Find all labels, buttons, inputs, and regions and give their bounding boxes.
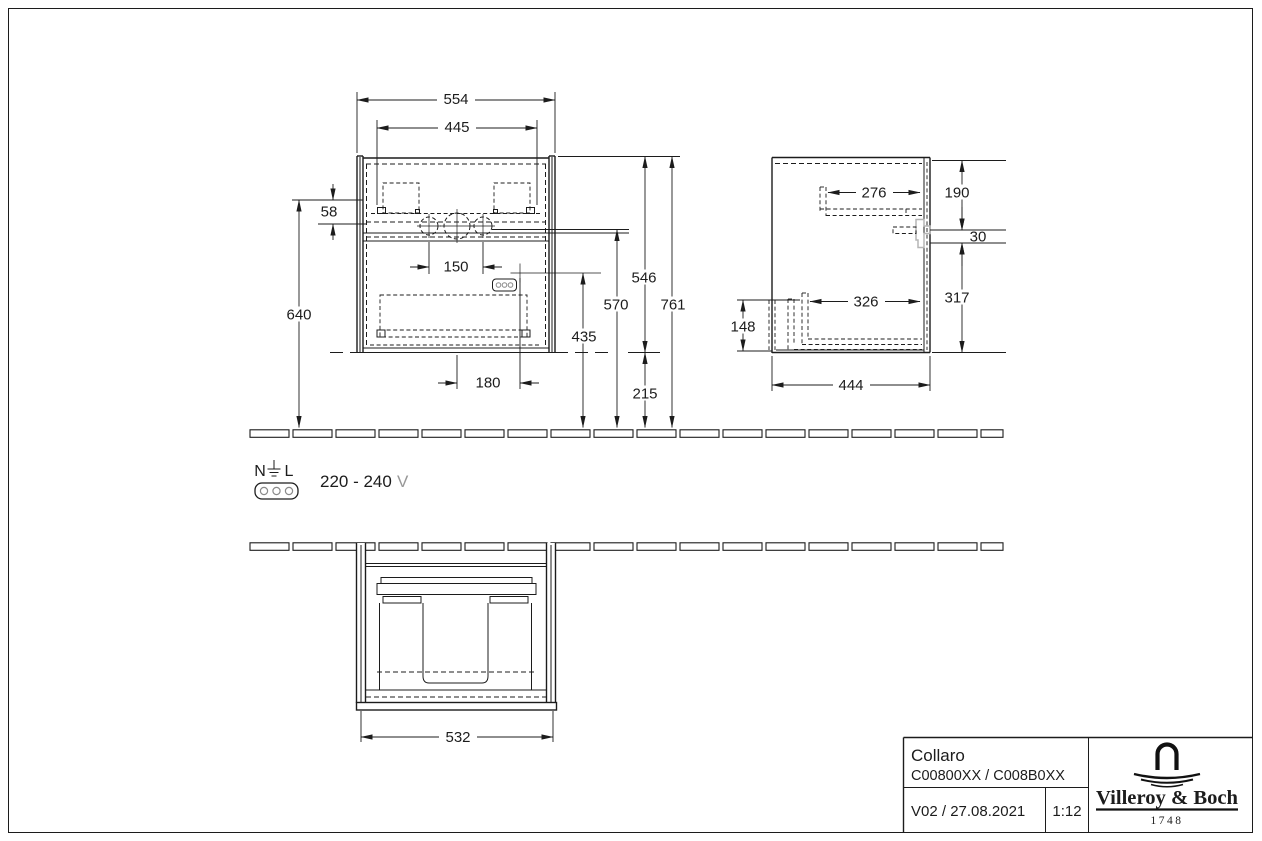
dim-front-height: 148 <box>730 319 755 336</box>
dim-plan-front-width: 532 <box>445 729 470 746</box>
power-socket-icon <box>255 483 298 499</box>
dim-upper-rail-depth: 276 <box>861 185 886 202</box>
front-view-upper-brackets <box>371 183 541 214</box>
side-view-dimensions: 276 190 30 317 326 148 444 <box>725 161 1006 395</box>
dim-rail-height: 570 <box>603 297 628 314</box>
line-label: L <box>285 463 294 480</box>
dim-gap-below: 215 <box>632 386 657 403</box>
dim-lower-rail-depth: 326 <box>853 294 878 311</box>
dim-depth: 444 <box>838 377 863 394</box>
page-border <box>9 9 1253 833</box>
tap-hole-markers <box>417 209 495 243</box>
dim-siphon-offset: 180 <box>475 375 500 392</box>
article-numbers: C00800XX / C008B0XX <box>911 768 1065 784</box>
dim-siphon-height: 435 <box>571 329 596 346</box>
version-date: V02 / 27.08.2021 <box>911 803 1025 820</box>
voltage-range: 220 - 240 <box>320 472 392 491</box>
product-name: Collaro <box>911 746 965 765</box>
dim-front-top-offset: 58 <box>321 204 338 221</box>
front-view-lower-drawer <box>370 295 540 345</box>
neutral-label: N <box>254 463 266 480</box>
technical-drawing-page: 554 445 58 640 150 180 435 <box>0 0 1262 841</box>
dim-front-width-inner: 445 <box>444 119 469 136</box>
voltage-unit: V <box>397 472 409 491</box>
power-socket-icon <box>493 279 517 291</box>
dim-lower-height: 317 <box>944 290 969 307</box>
dim-upper-height: 190 <box>944 185 969 202</box>
dim-bracket-height: 30 <box>970 229 987 246</box>
dim-front-width-outer: 554 <box>443 91 468 108</box>
plan-view-drawer <box>377 578 536 691</box>
wall-hatch-upper <box>250 430 1003 438</box>
technical-drawing-canvas: 554 445 58 640 150 180 435 <box>0 0 1262 841</box>
title-block: Collaro C00800XX / C008B0XX V02 / 27.08.… <box>904 738 1253 833</box>
brand-logo: Villeroy & Boch 1748 <box>1096 745 1238 828</box>
brand-name: Villeroy & Boch <box>1096 787 1238 809</box>
front-view <box>330 156 660 353</box>
dim-total-height: 761 <box>660 297 685 314</box>
dim-front-height-left: 640 <box>286 307 311 324</box>
plan-view-front-edge <box>357 703 557 711</box>
electrical-connection-symbol: N L 220 - 240 V <box>254 460 409 499</box>
bracket-fixing-outline <box>893 227 916 234</box>
side-view <box>769 158 930 354</box>
plan-view: 532 <box>356 543 557 746</box>
dim-tap-spacing: 150 <box>443 259 468 276</box>
villeroy-boch-crest-icon <box>1134 745 1200 787</box>
dim-cabinet-height: 546 <box>631 270 656 287</box>
front-view-side-panels <box>357 156 555 353</box>
front-view-dimensions: 554 445 58 640 150 180 435 <box>281 91 692 428</box>
drawing-scale: 1:12 <box>1052 803 1081 820</box>
wall-bracket-icon <box>916 220 930 248</box>
brand-founded-year: 1748 <box>1151 815 1184 827</box>
earth-ground-icon <box>268 460 281 476</box>
siphon-crosshair-icon <box>511 264 602 283</box>
